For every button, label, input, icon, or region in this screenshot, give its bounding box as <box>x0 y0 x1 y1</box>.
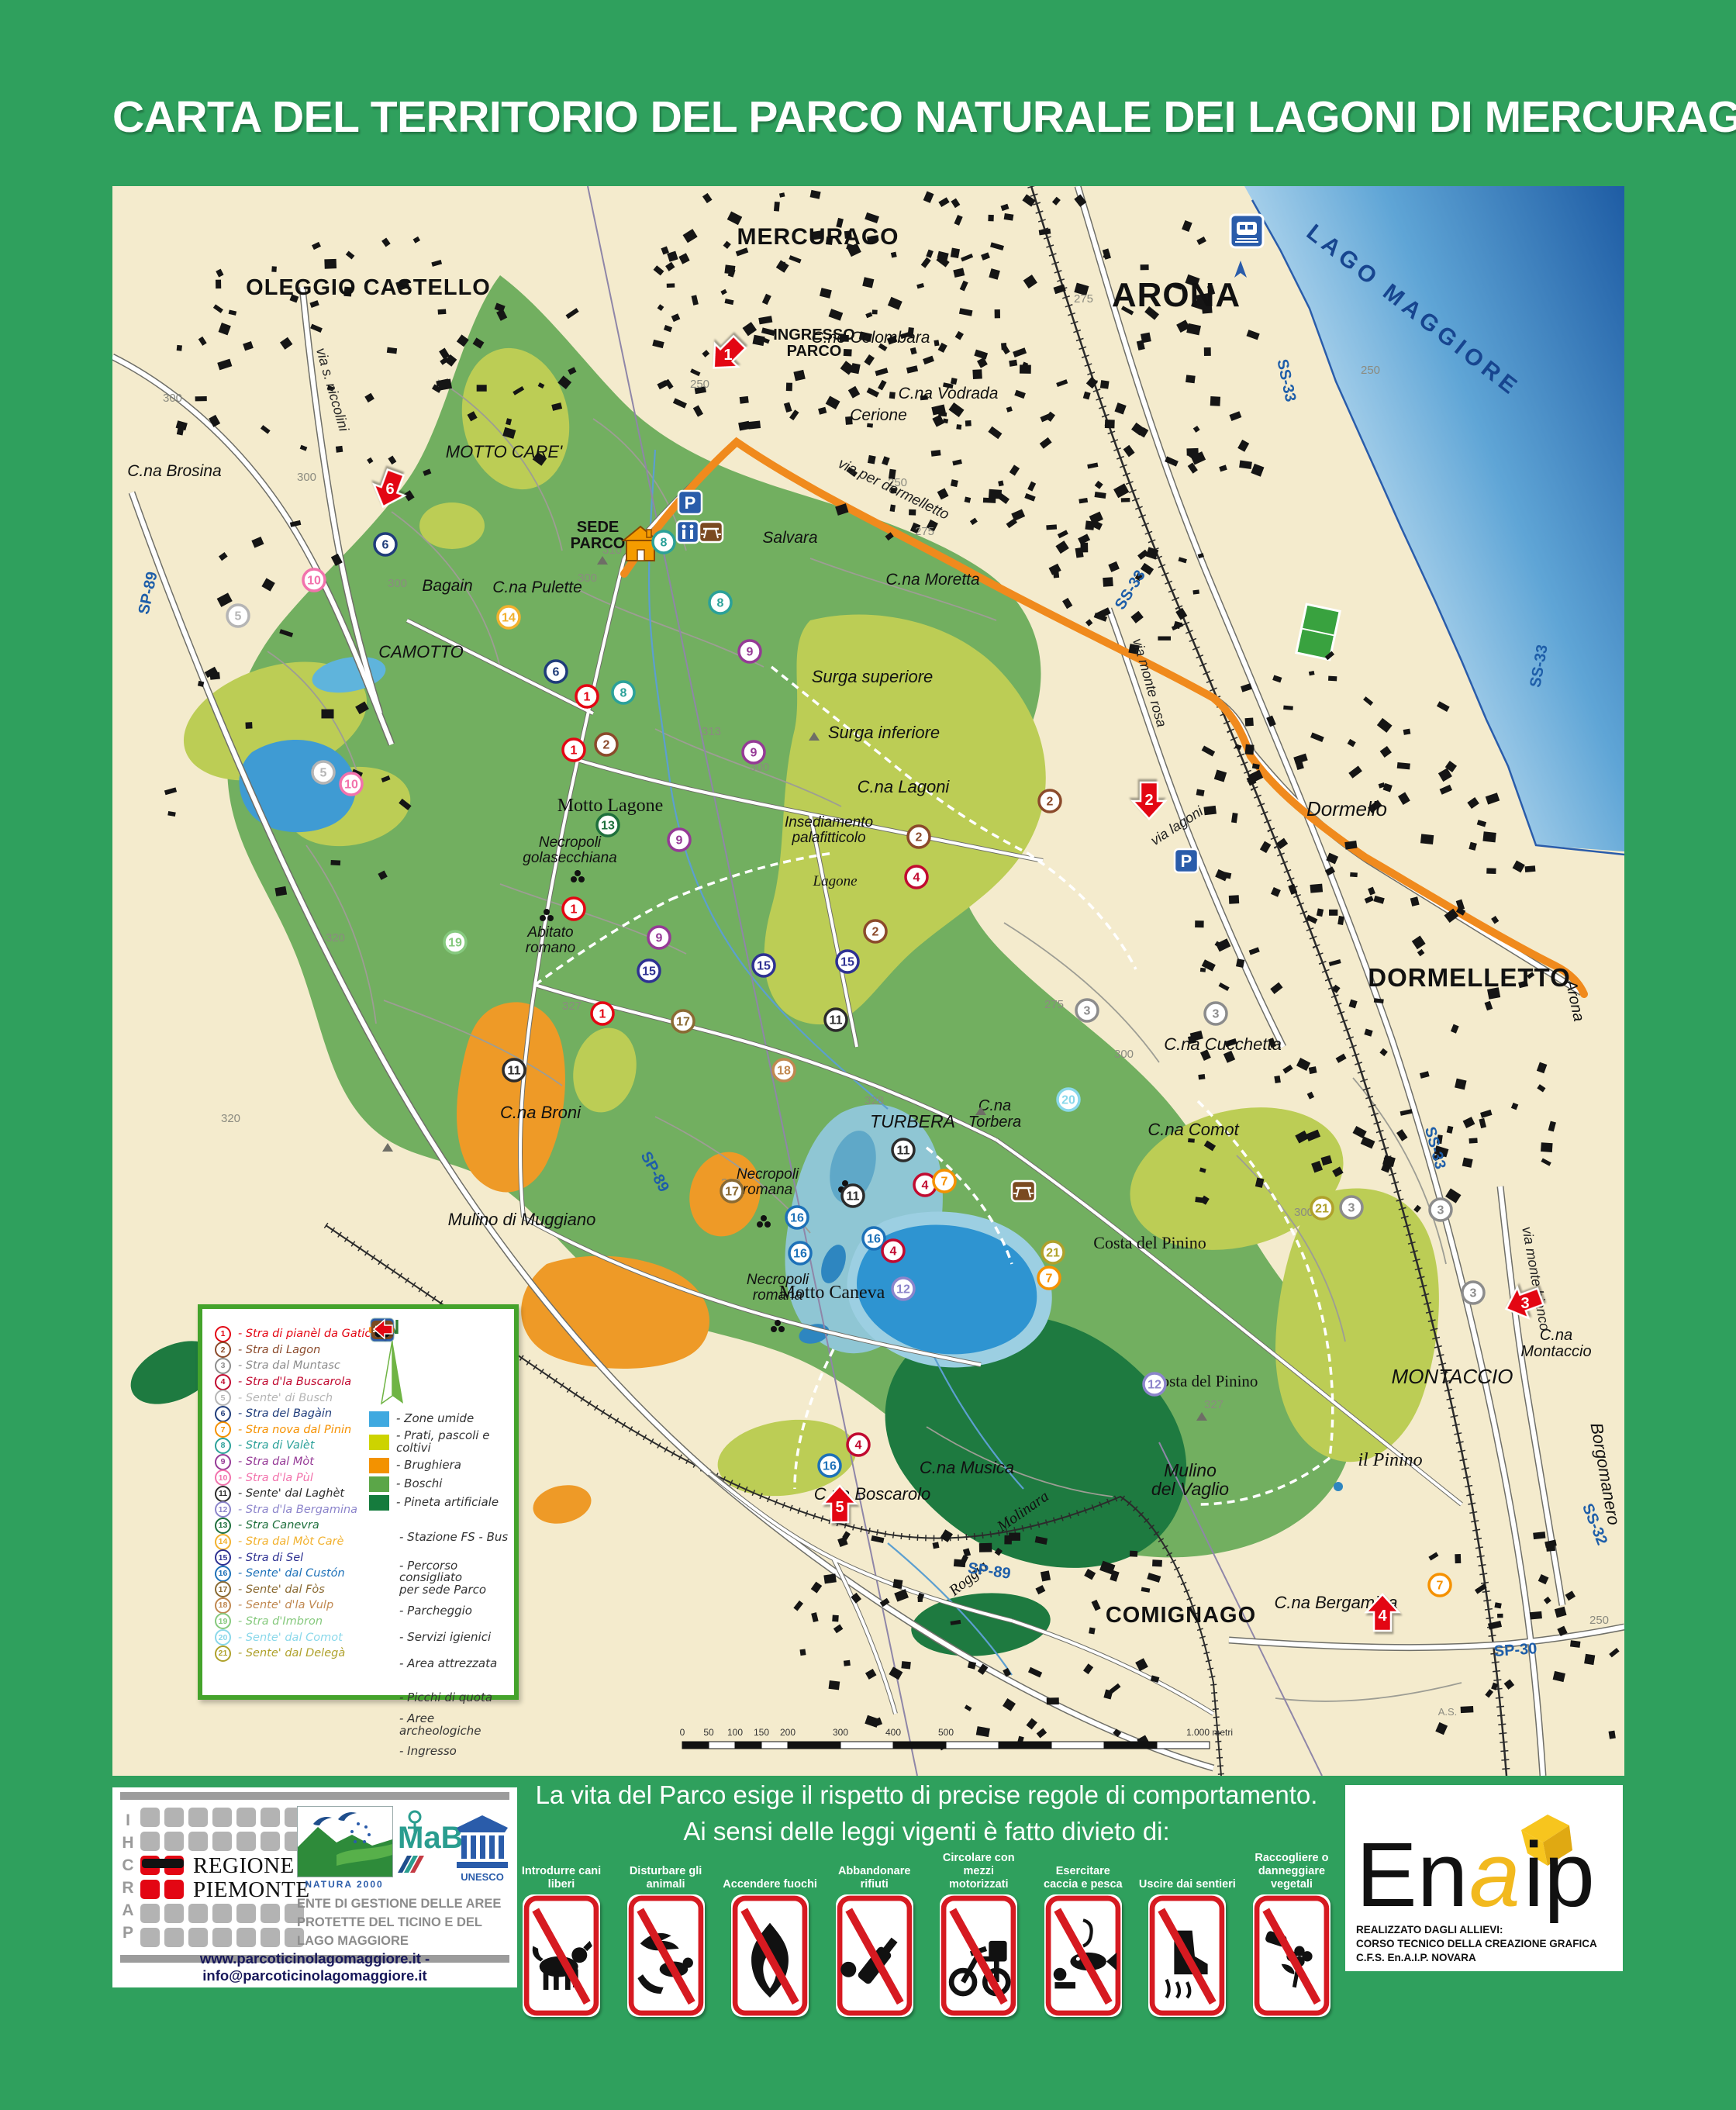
trail-number-marker: 15 <box>837 951 858 972</box>
legend-symbol-label: - Stazione FS - Bus <box>399 1532 508 1544</box>
legend-trail-number: 16 <box>215 1566 231 1582</box>
trail-number-marker: 16 <box>863 1228 885 1249</box>
trail-number-marker: 11 <box>503 1059 525 1081</box>
regione-logo-square <box>140 1928 160 1947</box>
legend-symbol-item: - Picchi di quota <box>369 1687 516 1710</box>
legend-trail-item: 12- Stra d'la Bergamina <box>215 1502 371 1518</box>
no-animals-icon <box>627 1894 705 2017</box>
trail-number-marker: 13 <box>597 814 619 836</box>
legend-area-label: - Pineta artificiale <box>396 1497 499 1509</box>
svg-text:5: 5 <box>320 767 327 780</box>
legend-symbol-label: - Area attrezzata <box>399 1658 497 1670</box>
trail-number-marker: 3 <box>1341 1197 1362 1218</box>
regione-logo-square <box>140 1808 160 1827</box>
prohibition-label: Esercitare caccia e pesca <box>1044 1857 1123 1891</box>
svg-text:a: a <box>1469 1824 1520 1923</box>
svg-text:19: 19 <box>448 937 462 950</box>
rules-panel: La vita del Parco esige il rispetto di p… <box>512 1780 1341 2017</box>
trail-number-marker: 7 <box>934 1170 955 1192</box>
legend-trail-number: 8 <box>215 1438 231 1454</box>
trail-number-marker: 4 <box>847 1434 869 1456</box>
svg-text:6: 6 <box>385 481 394 498</box>
trail-number-marker: 1 <box>563 898 585 920</box>
legend-trail-item: 15- Stra di Sel <box>215 1549 371 1566</box>
svg-text:P: P <box>685 493 696 513</box>
no-plants-icon <box>1253 1894 1330 2017</box>
map-label: Cerione <box>850 406 907 424</box>
contour-label: 250 <box>690 378 709 391</box>
regione-logo-square <box>188 1904 208 1923</box>
svg-text:2: 2 <box>1144 792 1153 809</box>
svg-text:4: 4 <box>1378 1608 1387 1625</box>
legend-trail-number: 6 <box>215 1406 231 1422</box>
legend-area-label: - Prati, pascoli e coltivi <box>396 1430 516 1455</box>
legend-trail-label: - Stra dal Mòt <box>238 1456 314 1468</box>
regione-logo-square <box>140 1832 160 1851</box>
legend-trail-item: 19- Stra d'Imbron <box>215 1614 371 1630</box>
legend-symbol-item: - Percorso consigliato per sede Parco <box>369 1560 516 1597</box>
legend-trail-number: 11 <box>215 1486 231 1502</box>
trail-number-marker: 21 <box>1042 1241 1064 1263</box>
no-dog-icon <box>523 1894 600 2017</box>
legend-trail-number: 5 <box>215 1390 231 1406</box>
trail-number-marker: 3 <box>1430 1199 1451 1221</box>
entrance-icon <box>369 1317 395 1343</box>
parking-icon: P <box>1175 849 1198 872</box>
trail-number-marker: 1 <box>592 1003 613 1024</box>
ente-label: ENTE DI GESTIONE DELLE AREE PROTETTE DEL… <box>297 1894 514 1950</box>
prohibition-item: Accendere fuochi <box>720 1857 820 2017</box>
legend-trail-label: - Stra d'la Pùl <box>238 1472 313 1484</box>
prohibition-label: Introdurre cani liberi <box>512 1857 611 1891</box>
svg-text:1: 1 <box>599 1008 606 1021</box>
svg-text:2: 2 <box>1047 796 1054 809</box>
legend-symbol-label: - Parcheggio <box>399 1605 472 1618</box>
trail-number-marker: 6 <box>374 534 396 555</box>
trail-number-marker: 14 <box>498 606 519 628</box>
legend-symbols: N - Zone umide- Prati, pascoli e coltivi… <box>369 1317 516 1766</box>
svg-text:7: 7 <box>941 1176 948 1189</box>
legend-trail-item: 14- Stra dal Mòt Carè <box>215 1534 371 1550</box>
svg-text:1.000 metri: 1.000 metri <box>1186 1727 1233 1738</box>
prohibition-label: Abbandonare rifiuti <box>825 1857 924 1891</box>
prohibition-sign <box>1044 1894 1122 2017</box>
trail-number-marker: 2 <box>865 920 886 942</box>
svg-text:200: 200 <box>780 1727 796 1738</box>
map-label: C.na Vodrada <box>899 385 999 402</box>
trail-number-marker: 11 <box>825 1009 847 1031</box>
svg-text:4: 4 <box>890 1245 897 1259</box>
trail-number-marker: 5 <box>227 605 249 627</box>
legend-area-swatch <box>369 1476 389 1492</box>
svg-text:UNESCO: UNESCO <box>461 1871 504 1883</box>
prohibition-item: Disturbare gli animali <box>616 1857 716 2017</box>
svg-text:9: 9 <box>676 834 683 848</box>
prohibition-sign <box>523 1894 600 2017</box>
prohibition-label: Uscire dai sentieri <box>1139 1857 1236 1891</box>
map-label: TURBERA <box>870 1111 955 1131</box>
trail-number-marker: 4 <box>914 1174 936 1196</box>
map-label: C.na Moretta <box>885 571 979 589</box>
mab-unesco-logos: MaB UNESCO <box>396 1808 511 1890</box>
contour-label: 275 <box>1044 998 1064 1011</box>
trail-number-marker: 16 <box>819 1455 840 1476</box>
regione-piemonte-label: REGIONE PIEMONTE <box>193 1854 310 1902</box>
map-label: MERCURAGO <box>737 224 899 250</box>
prohibition-item: Introdurre cani liberi <box>512 1857 611 2017</box>
legend-trail-item: 9- Stra dal Mòt <box>215 1454 371 1470</box>
trail-number-marker: 16 <box>789 1242 811 1264</box>
map-label: Abitatoromano <box>526 924 575 956</box>
no-litter-icon <box>836 1894 913 2017</box>
svg-text:21: 21 <box>1315 1203 1329 1216</box>
regione-logo-square <box>261 1832 280 1851</box>
legend-symbol-item: - Area attrezzata <box>369 1652 516 1676</box>
map-label: OLEGGIO CASTELLO <box>246 275 491 300</box>
svg-text:MaB: MaB <box>398 1821 463 1855</box>
legend-trail-number: 13 <box>215 1518 231 1534</box>
trail-number-marker: 2 <box>595 734 617 755</box>
svg-text:11: 11 <box>830 1014 843 1027</box>
legend-area-swatch <box>369 1458 389 1473</box>
prohibition-label: Raccogliere o danneggiare vegetali <box>1242 1857 1341 1891</box>
regione-logo-square <box>236 1904 256 1923</box>
legend-area-swatch <box>369 1435 389 1450</box>
svg-text:14: 14 <box>502 612 516 625</box>
regione-logo-square <box>164 1928 184 1947</box>
trail-number-marker: 3 <box>1205 1003 1227 1024</box>
regione-logo-square <box>261 1904 280 1923</box>
trail-number-marker: 7 <box>1429 1574 1451 1596</box>
map-label: Motto Lagone <box>557 796 664 816</box>
svg-text:2: 2 <box>603 739 610 752</box>
svg-text:17: 17 <box>676 1016 690 1029</box>
legend-trail-label: - Stra d'la Bergamina <box>238 1504 357 1516</box>
svg-text:11: 11 <box>897 1145 910 1158</box>
svg-text:1: 1 <box>723 347 732 364</box>
trail-number-marker: 20 <box>1058 1089 1079 1110</box>
map-label: COMIGNAGO <box>1106 1603 1256 1628</box>
regione-logo-square <box>188 1832 208 1851</box>
prohibition-sign <box>1148 1894 1226 2017</box>
legend-trail-item: 10- Stra d'la Pùl <box>215 1469 371 1486</box>
poster-title: CARTA DEL TERRITORIO DEL PARCO NATURALE … <box>112 92 1624 169</box>
regione-logo-square <box>236 1928 256 1947</box>
svg-text:P: P <box>1181 851 1192 871</box>
svg-text:7: 7 <box>1046 1273 1053 1286</box>
legend-trail-label: - Stra di Sel <box>238 1552 303 1564</box>
trail-number-marker: 10 <box>303 569 325 591</box>
svg-text:5: 5 <box>235 610 242 623</box>
svg-text:2: 2 <box>872 926 879 939</box>
legend-trail-label: - Stra d'la Buscarola <box>238 1376 351 1388</box>
no-trail-icon <box>1148 1894 1226 2017</box>
legend-trail-label: - Sente' dal Delegà <box>238 1647 345 1659</box>
trail-number-marker: 3 <box>1076 1000 1098 1021</box>
contact-links[interactable]: www.parcoticinolagomaggiore.it - info@pa… <box>112 1950 517 1984</box>
trail-number-marker: 8 <box>653 531 675 553</box>
legend-trail-item: 17- Sente' dal Fòs <box>215 1582 371 1598</box>
legend-area-item: - Boschi <box>369 1476 516 1492</box>
map-label: C.na Lagoni <box>858 777 951 796</box>
svg-text:0: 0 <box>680 1727 685 1738</box>
svg-text:6: 6 <box>382 539 389 552</box>
legend-trail-list: 1- Stra di pianèl da Gatic2- Stra di Lag… <box>215 1326 371 1661</box>
contour-label: 275 <box>1074 292 1093 306</box>
prohibition-signs: Introdurre cani liberiDisturbare gli ani… <box>512 1857 1341 2017</box>
picnic-area-icon <box>699 522 723 542</box>
trail-number-marker: 12 <box>892 1278 914 1300</box>
map-label: C.na Broni <box>500 1103 582 1122</box>
legend-trail-label: - Sente' dal Laghèt <box>238 1487 344 1500</box>
regione-logo-square <box>212 1808 232 1827</box>
svg-text:4: 4 <box>855 1439 862 1452</box>
divider <box>120 1792 509 1800</box>
svg-text:9: 9 <box>656 932 663 945</box>
legend-trail-number: 14 <box>215 1534 231 1550</box>
svg-text:11: 11 <box>847 1190 860 1203</box>
svg-text:4: 4 <box>922 1179 929 1193</box>
regione-logo-square <box>140 1904 160 1923</box>
legend-trail-label: - Stra del Bagàin <box>238 1407 332 1420</box>
regione-logo-glasses <box>142 1859 184 1868</box>
contour-label: 320 <box>221 1112 240 1125</box>
no-fish-icon <box>1044 1894 1122 2017</box>
trail-number-marker: 6 <box>545 661 567 682</box>
legend-area-label: - Boschi <box>396 1478 442 1490</box>
contour-label: 300 <box>388 577 407 590</box>
legend-symbol-item: - Stazione FS - Bus <box>369 1526 516 1549</box>
prohibition-sign <box>1253 1894 1330 2017</box>
legend-trail-item: 6- Stra del Bagàin <box>215 1406 371 1422</box>
svg-text:16: 16 <box>867 1233 881 1246</box>
svg-text:12: 12 <box>1148 1379 1161 1392</box>
trail-number-marker: 9 <box>648 927 670 948</box>
legend-trail-item: 5- Sente' di Busch <box>215 1390 371 1406</box>
contour-label: 300 <box>163 392 182 405</box>
svg-text:21: 21 <box>1046 1247 1060 1260</box>
trail-number-marker: 4 <box>906 866 927 888</box>
contour-label: 327 <box>562 1000 582 1013</box>
trail-number-marker: 4 <box>882 1240 904 1262</box>
trail-number-marker: 7 <box>1038 1267 1060 1289</box>
trail-number-marker: 11 <box>892 1139 914 1161</box>
regione-logo-square <box>188 1808 208 1827</box>
legend-trail-number: 10 <box>215 1469 231 1486</box>
contour-label: 328 <box>865 1094 884 1107</box>
trail-number-marker: 9 <box>739 641 761 662</box>
svg-text:150: 150 <box>754 1727 769 1738</box>
legend-trail-label: - Sente' dal Comot <box>238 1632 343 1644</box>
trail-number-marker: 11 <box>842 1185 864 1207</box>
regione-logo-red-square <box>164 1880 184 1899</box>
svg-text:3: 3 <box>1213 1008 1220 1021</box>
svg-text:En: En <box>1356 1824 1468 1923</box>
no-fire-icon <box>731 1894 809 2017</box>
trail-number-marker: 3 <box>1462 1282 1484 1304</box>
svg-text:1: 1 <box>584 691 591 704</box>
legend-trail-number: 17 <box>215 1581 231 1597</box>
legend-trail-number: 20 <box>215 1629 231 1646</box>
trail-number-marker: 15 <box>753 955 775 976</box>
map-label: MOTTO CARE' <box>446 442 563 461</box>
svg-text:8: 8 <box>661 537 668 550</box>
legend-trail-number: 9 <box>215 1454 231 1470</box>
enaip-logo: En a ip <box>1355 1807 1618 1923</box>
svg-text:16: 16 <box>793 1248 807 1261</box>
regione-logo-square <box>212 1904 232 1923</box>
map-label: MONTACCIO <box>1392 1365 1513 1388</box>
map-label: C.na Brosina <box>127 462 221 480</box>
contour-label: 320 <box>326 931 345 944</box>
svg-text:15: 15 <box>757 960 771 973</box>
trail-number-marker: 9 <box>743 741 764 763</box>
prohibition-item: Esercitare caccia e pesca <box>1034 1857 1133 2017</box>
svg-text:8: 8 <box>620 687 627 700</box>
svg-text:16: 16 <box>790 1212 804 1225</box>
map-label: Motto Caneva <box>779 1283 885 1303</box>
legend-trail-label: - Sente' d'la Vulp <box>238 1599 333 1611</box>
regione-logo-square <box>261 1808 280 1827</box>
svg-text:6: 6 <box>553 666 560 679</box>
legend-trail-item: 2- Stra di Lagon <box>215 1342 371 1359</box>
map-label: Necropoliromana <box>737 1166 799 1198</box>
svg-text:3: 3 <box>1520 1295 1529 1312</box>
prohibition-item: Circolare con mezzi motorizzati <box>929 1857 1028 2017</box>
legend-trail-label: - Stra di Lagon <box>238 1344 320 1356</box>
prohibition-label: Circolare con mezzi motorizzati <box>929 1857 1028 1891</box>
regione-logo-square <box>212 1928 232 1947</box>
map-label: DORMELLETTO <box>1368 963 1571 992</box>
svg-text:300: 300 <box>833 1727 848 1738</box>
regione-logo-square <box>236 1808 256 1827</box>
prohibition-item: Uscire dai sentieri <box>1137 1857 1237 2017</box>
regione-logo-square <box>212 1832 232 1851</box>
trail-number-marker: 8 <box>613 682 634 703</box>
enaip-credits: REALIZZATO DAGLI ALLIEVI:CORSO TECNICO D… <box>1356 1923 1597 1965</box>
trail-number-marker: 1 <box>576 685 598 707</box>
legend-trail-item: 18- Sente' d'la Vulp <box>215 1597 371 1614</box>
map-label: Lagone <box>813 873 858 889</box>
prohibition-item: Raccogliere o danneggiare vegetali <box>1242 1857 1341 2017</box>
legend-trail-label: - Stra di pianèl da Gatic <box>238 1328 371 1340</box>
legend-area-item: - Brughiera <box>369 1458 516 1473</box>
trail-number-marker: 16 <box>786 1207 808 1228</box>
legend-trail-number: 19 <box>215 1613 231 1629</box>
trail-number-marker: 1 <box>563 739 585 761</box>
regione-logo-square <box>164 1904 184 1923</box>
legend-trail-number: 12 <box>215 1501 231 1518</box>
contour-label: 300 <box>297 471 316 484</box>
map-label: Bagain <box>422 577 472 595</box>
map-legend: 1- Stra di pianèl da Gatic2- Stra di Lag… <box>198 1304 519 1700</box>
svg-text:11: 11 <box>508 1065 521 1078</box>
svg-text:9: 9 <box>747 646 754 659</box>
svg-text:15: 15 <box>840 956 854 969</box>
map-label: A.S. <box>1438 1706 1458 1718</box>
map-label: Insediamentopalafitticolo <box>785 814 873 846</box>
regione-logo-red-square <box>140 1880 160 1899</box>
svg-text:3: 3 <box>1348 1202 1355 1215</box>
legend-trail-number: 3 <box>215 1358 231 1374</box>
legend-symbol-item: - Ingresso <box>369 1740 516 1763</box>
legend-symbol-label: - Servizi igienici <box>399 1632 491 1644</box>
map-label: ARONA <box>1112 276 1241 314</box>
trail-number-marker: 2 <box>1039 790 1061 812</box>
prohibition-sign <box>836 1894 913 2017</box>
legend-trail-label: - Stra nova dal Pinin <box>238 1424 351 1436</box>
svg-text:5: 5 <box>835 1499 844 1516</box>
svg-text:7: 7 <box>1437 1580 1444 1593</box>
legend-symbol-label: - Picchi di quota <box>399 1692 492 1704</box>
trail-number-marker: 8 <box>709 592 731 613</box>
svg-text:20: 20 <box>1061 1094 1075 1107</box>
legend-trail-label: - Stra Canevra <box>238 1519 319 1532</box>
svg-text:10: 10 <box>307 575 321 588</box>
trail-number-marker: 5 <box>312 761 334 783</box>
natura-2000-logo: NATURA 2000 <box>297 1806 392 1890</box>
legend-trail-label: - Sente' dal Fòs <box>238 1583 325 1596</box>
legend-trail-item: 13- Stra Canevra <box>215 1518 371 1534</box>
svg-text:15: 15 <box>642 965 656 979</box>
trail-number-marker: 12 <box>1144 1373 1165 1395</box>
park-map: 3003002502502753103003133003203273283002… <box>112 186 1624 1776</box>
contour-label: 250 <box>1589 1614 1609 1627</box>
prohibition-sign <box>627 1894 705 2017</box>
regione-logo-square <box>236 1832 256 1851</box>
enaip-credit-line: CORSO TECNICO DELLA CREAZIONE GRAFICA <box>1356 1937 1597 1951</box>
toilets-icon <box>677 521 699 543</box>
svg-text:ip: ip <box>1524 1824 1595 1923</box>
contour-label: 300 <box>1114 1048 1134 1061</box>
map-label: C.na Pulette <box>492 578 582 596</box>
legend-trail-label: - Sente' dal Custón <box>238 1567 345 1580</box>
legend-area-swatch <box>369 1411 389 1427</box>
svg-text:500: 500 <box>938 1727 954 1738</box>
legend-trail-number: 4 <box>215 1374 231 1390</box>
svg-text:4: 4 <box>913 872 920 885</box>
legend-area-label: - Brughiera <box>396 1459 461 1472</box>
no-motor-icon <box>940 1894 1017 2017</box>
svg-text:100: 100 <box>727 1727 743 1738</box>
legend-symbol-item: - Aree archeologiche <box>369 1713 516 1738</box>
legend-trail-item: 7- Stra nova dal Pinin <box>215 1422 371 1438</box>
park-poster: CARTA DEL TERRITORIO DEL PARCO NATURALE … <box>0 0 1736 2110</box>
regione-logo-square <box>261 1928 280 1947</box>
trail-number-marker: 10 <box>340 773 362 795</box>
trail-number-marker: 2 <box>908 826 930 848</box>
svg-text:18: 18 <box>777 1065 791 1078</box>
regione-logo-square <box>164 1808 184 1827</box>
legend-trail-item: 8- Stra di Valèt <box>215 1438 371 1454</box>
legend-symbol-label: - Percorso consigliato per sede Parco <box>399 1560 516 1597</box>
parking-icon: P <box>678 491 702 514</box>
svg-text:3: 3 <box>1470 1287 1477 1300</box>
trail-number-marker: 19 <box>444 931 466 953</box>
legend-trail-label: - Stra d'Imbron <box>238 1615 323 1628</box>
svg-text:1: 1 <box>571 903 578 917</box>
contour-label: 313 <box>702 725 721 738</box>
prohibition-sign <box>731 1894 809 2017</box>
legend-symbol-item: - Servizi igienici <box>369 1626 516 1649</box>
trail-number-marker: 9 <box>668 829 690 851</box>
regione-logo-square <box>164 1832 184 1851</box>
trail-number-marker: 21 <box>1311 1197 1333 1219</box>
prohibition-label: Accendere fuochi <box>723 1857 817 1891</box>
parchi-vertical-label: IHCRAP <box>119 1809 137 1944</box>
svg-text:17: 17 <box>725 1186 739 1199</box>
legend-symbol-label: - Aree archeologiche <box>399 1713 516 1738</box>
